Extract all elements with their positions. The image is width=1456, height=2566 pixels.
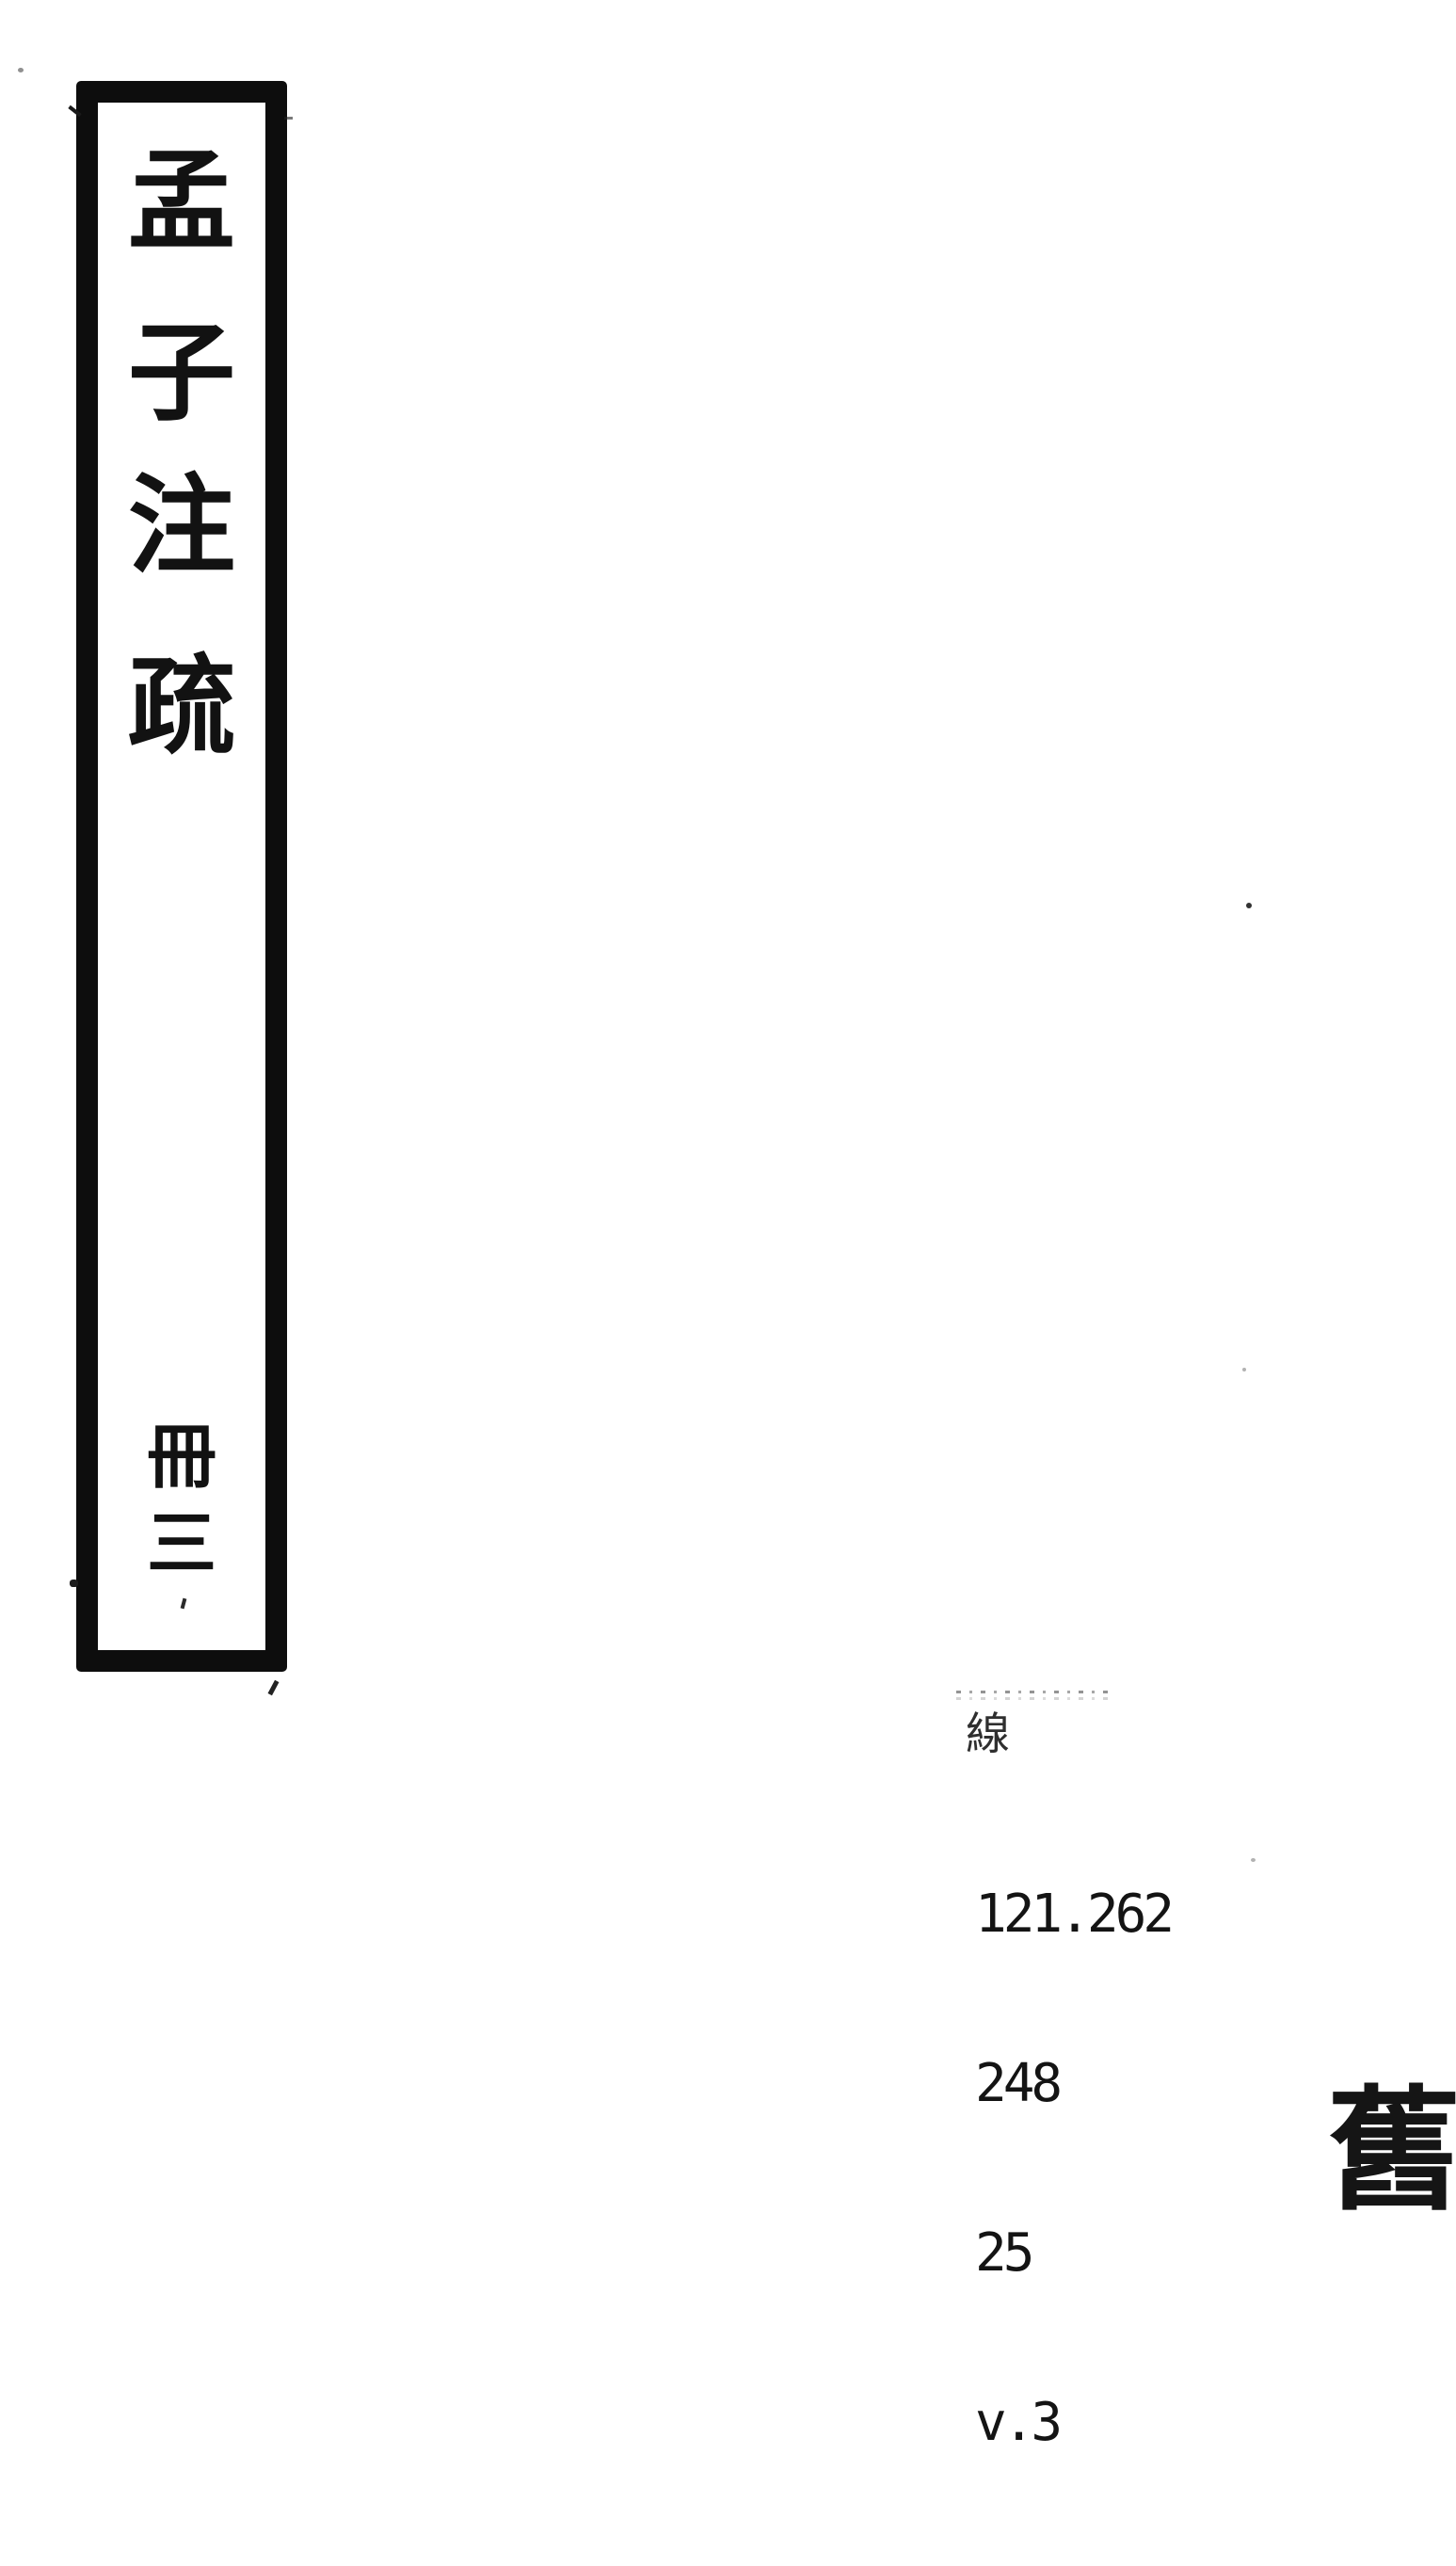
call-number-block: 121.262 248 25 v.3 xyxy=(975,1773,1171,2564)
binding-character: 線 xyxy=(966,1712,1010,1756)
ink-speck xyxy=(70,1580,78,1587)
dotted-pencil-line-row xyxy=(956,1697,1111,1700)
call-number-line-class: 121.262 xyxy=(975,1886,1171,1943)
ink-speck xyxy=(1251,1858,1256,1862)
volume-char-ce: 冊 xyxy=(98,1422,265,1492)
ink-speck xyxy=(284,117,293,120)
dotted-pencil-line-row xyxy=(956,1691,1111,1693)
title-char-meng: 孟 xyxy=(98,148,265,255)
title-char-zhu: 注 xyxy=(98,472,265,579)
ink-speck xyxy=(1246,903,1252,908)
volume-char-san: 三 xyxy=(98,1509,265,1579)
ink-speck xyxy=(18,68,24,72)
ink-speck xyxy=(268,1680,280,1695)
call-number-line-volume: v.3 xyxy=(975,2395,1171,2451)
dotted-pencil-line xyxy=(956,1691,1111,1702)
title-char-shu: 疏 xyxy=(98,652,265,760)
book-spine-label-frame: 孟 子 注 疏 冊 三 xyxy=(76,81,287,1672)
old-stamp-character: 舊 xyxy=(1327,2084,1456,2218)
ink-speck xyxy=(1242,1368,1246,1371)
title-char-zi: 子 xyxy=(98,319,265,426)
call-number-line-item: 25 xyxy=(975,2225,1171,2282)
call-number-line-cutter: 248 xyxy=(975,2056,1171,2112)
